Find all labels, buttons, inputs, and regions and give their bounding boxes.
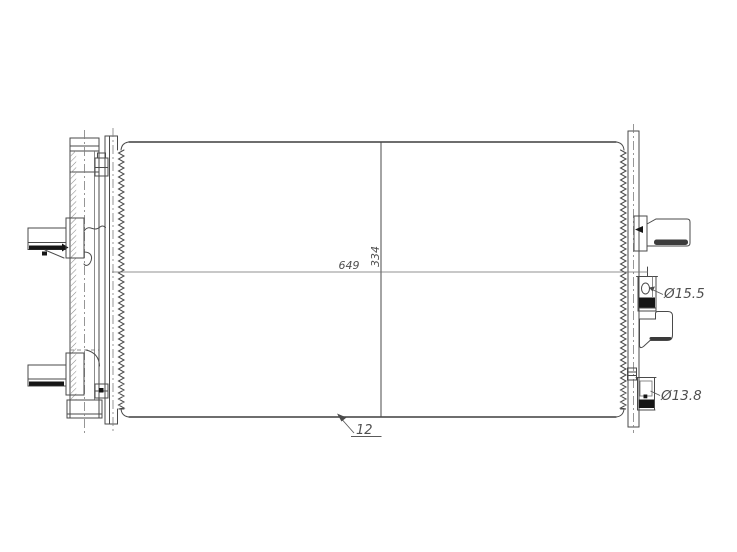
clip-bracket-right — [639, 312, 673, 348]
pin-slot — [654, 240, 688, 246]
pin-seal-strip — [29, 246, 62, 250]
right-fin-edge — [621, 150, 627, 409]
bracket-upper-left — [28, 218, 106, 265]
port-oring-band — [639, 298, 655, 308]
drier-hatch-band — [71, 151, 76, 400]
left-header-tank — [105, 128, 118, 432]
drawing-canvas: 649 334 Ø15.5 Ø13.8 12 — [0, 0, 737, 552]
condenser-core — [119, 142, 627, 417]
left-fin-edge — [119, 150, 125, 409]
width-dimension-label: 649 — [339, 259, 360, 272]
lower-port-diameter-label: Ø13.8 — [660, 388, 702, 404]
condenser-technical-drawing: 649 334 Ø15.5 Ø13.8 12 — [0, 0, 737, 552]
receiver-drier — [67, 130, 108, 433]
height-dimension-label: 334 — [369, 246, 382, 267]
pin-seal-strip — [29, 382, 64, 386]
bracket-upper-right — [634, 216, 690, 251]
bracket-plate — [634, 216, 647, 251]
dimension-annotations: 649 334 Ø15.5 Ø13.8 12 — [112, 246, 705, 438]
thickness-dimension-label: 12 — [356, 423, 373, 438]
port-oring-band — [639, 400, 655, 409]
tank-fitting-small — [628, 368, 637, 380]
upper-port-diameter-label: Ø15.5 — [663, 286, 705, 302]
upper-port — [637, 267, 658, 311]
